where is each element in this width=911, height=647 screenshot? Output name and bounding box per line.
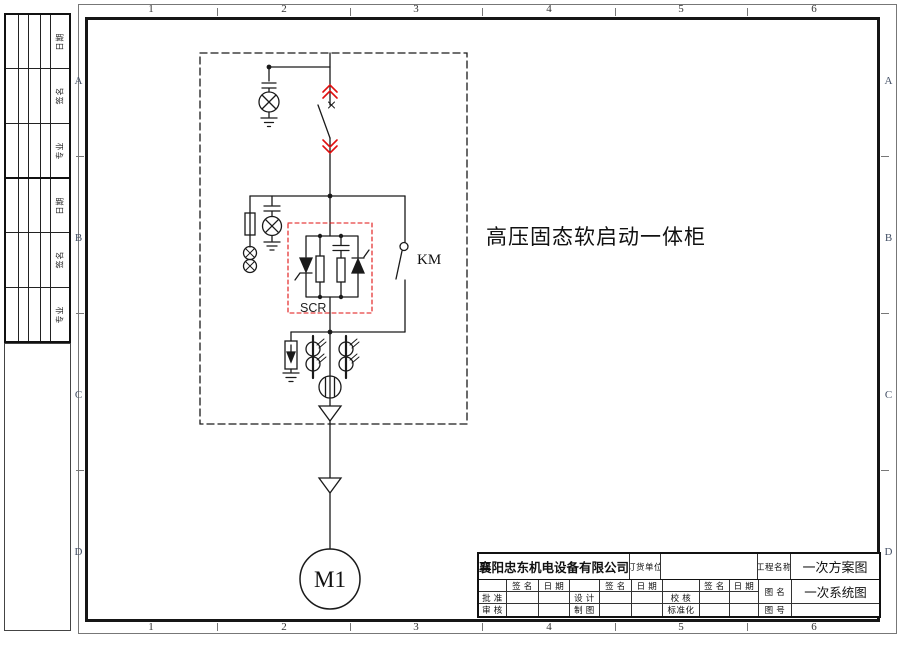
- role-design: 设 计: [570, 592, 600, 604]
- live-line-indicator: [259, 67, 330, 127]
- date-header: 日 期: [539, 580, 570, 592]
- grid-cell: [507, 592, 539, 604]
- current-transformer-left: [306, 336, 326, 378]
- one-line-schematic: KM SCR M1: [0, 0, 911, 647]
- grid-cell: [730, 592, 759, 604]
- scr-label: SCR: [300, 301, 326, 315]
- order-unit-label: 订货单位: [630, 554, 661, 579]
- title-block: 襄阳忠东机电设备有限公司 订货单位 工程名称 一次方案图 签 名 日 期 签 名…: [477, 552, 881, 618]
- title-block-right: 图 名 一次系统图 图 号: [759, 580, 879, 616]
- project-name-label: 工程名称: [758, 554, 791, 579]
- role-check: 校 核: [663, 592, 700, 604]
- drawing-no-label: 图 号: [759, 604, 792, 616]
- current-transformer-right: [339, 336, 359, 378]
- grid-cell: [539, 604, 570, 616]
- role-approve: 批 准: [479, 592, 507, 604]
- motor-label: M1: [314, 567, 346, 592]
- project-name-value: 一次方案图: [791, 554, 879, 579]
- title-block-row1: 襄阳忠东机电设备有限公司 订货单位 工程名称 一次方案图: [479, 554, 879, 580]
- drawing-name-value: 一次系统图: [792, 580, 879, 603]
- grid-cell: [663, 580, 700, 592]
- grid-cell: [600, 592, 632, 604]
- signature-grid: 签 名 日 期 签 名 日 期 签 名 日 期 批 准 设 计 校 核 审 核: [479, 580, 759, 616]
- grid-cell: [700, 604, 730, 616]
- role-review: 审 核: [479, 604, 507, 616]
- role-standard: 标准化: [663, 604, 700, 616]
- plug-contact-upper: [319, 406, 341, 421]
- drawing-name-label: 图 名: [759, 580, 792, 603]
- grid-cell: [600, 604, 632, 616]
- km-contactor: [396, 196, 408, 332]
- plug-contact-lower: [319, 478, 341, 493]
- company-name: 襄阳忠东机电设备有限公司: [479, 554, 630, 579]
- date-header: 日 期: [730, 580, 759, 592]
- sign-header: 签 名: [700, 580, 730, 592]
- grid-cell: [632, 592, 663, 604]
- cabinet-title: 高压固态软启动一体柜: [486, 221, 706, 251]
- date-header: 日 期: [632, 580, 663, 592]
- order-unit-value: [661, 554, 758, 579]
- sign-header: 签 名: [600, 580, 632, 592]
- grid-cell: [539, 592, 570, 604]
- grid-cell: [700, 592, 730, 604]
- km-label: KM: [417, 252, 441, 268]
- drawing-no-value: [792, 604, 879, 616]
- role-draft: 制 图: [570, 604, 600, 616]
- grid-cell: [479, 580, 507, 592]
- surge-arrester: [283, 332, 299, 382]
- grid-cell: [632, 604, 663, 616]
- indicator-lamp-branch: [263, 196, 282, 250]
- title-block-lower: 签 名 日 期 签 名 日 期 签 名 日 期 批 准 设 计 校 核 审 核: [479, 580, 879, 616]
- pt-branch: [244, 196, 257, 273]
- grid-cell: [730, 604, 759, 616]
- grid-cell: [507, 604, 539, 616]
- grid-cell: [570, 580, 600, 592]
- scr-network: [295, 236, 369, 297]
- sign-header: 签 名: [507, 580, 539, 592]
- cabinet-boundary: [200, 53, 467, 424]
- drawing-sheet: 1 2 3 4 5 6 1 2 3 4 5 6 A B C D A B C D …: [0, 0, 911, 647]
- breaker-blade: [318, 105, 330, 138]
